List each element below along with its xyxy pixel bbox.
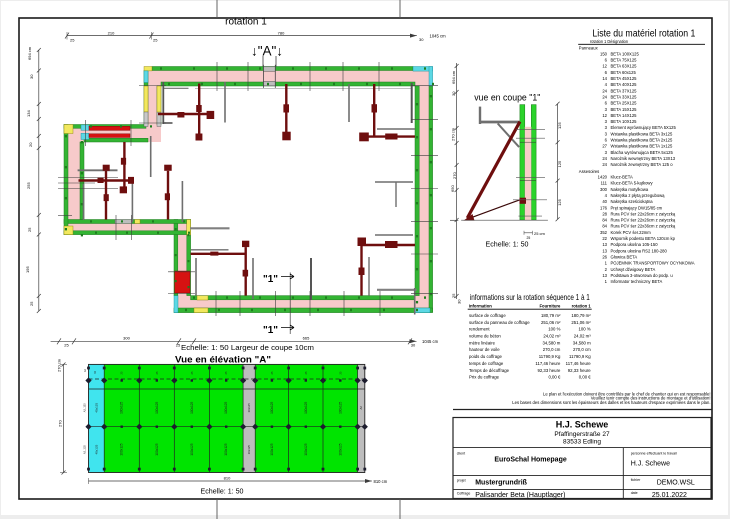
svg-text:92,33 heure: 92,33 heure	[537, 368, 561, 373]
svg-text:100x125: 100x125	[270, 443, 274, 455]
svg-text:694 cm: 694 cm	[451, 70, 456, 84]
svg-text:Wspornik podestu BETA 120cm kp: Wspornik podestu BETA 120cm kp	[611, 236, 676, 241]
svg-text:Pfaffingerstraße 27: Pfaffingerstraße 27	[554, 431, 610, 438]
svg-text:13: 13	[602, 248, 607, 253]
svg-text:Fourniture: Fourniture	[539, 304, 561, 309]
svg-text:255: 255	[26, 182, 31, 189]
svg-text:40x125: 40x125	[94, 444, 98, 454]
svg-text:11790,9 Kg: 11790,9 Kg	[569, 354, 591, 359]
svg-text:100x125: 100x125	[190, 443, 194, 455]
svg-text:176: 176	[600, 205, 608, 210]
svg-text:POJEMNIK TRANSPORTOWY OCYNKOWA: POJEMNIK TRANSPORTOWY OCYNKOWA	[611, 261, 695, 266]
svg-text:134: 134	[26, 110, 31, 117]
svg-text:Pręt spinający DW15/85 cm: Pręt spinający DW15/85 cm	[611, 205, 663, 210]
svg-text:30x125: 30x125	[247, 403, 251, 413]
svg-text:volume de béton: volume de béton	[469, 334, 501, 339]
svg-text:mètre linéaire: mètre linéaire	[469, 340, 496, 345]
svg-text:270 cm: 270 cm	[57, 358, 62, 372]
svg-text:22: 22	[602, 236, 607, 241]
svg-text:Podstawa 3-otworowa do podp. u: Podstawa 3-otworowa do podp. u	[611, 273, 674, 278]
svg-text:195: 195	[25, 266, 30, 273]
svg-text:1045 cm: 1045 cm	[430, 34, 447, 39]
svg-text:Klucz-BETA: Klucz-BETA	[611, 175, 633, 180]
svg-text:date: date	[631, 491, 638, 495]
svg-text:BETA 15X125: BETA 15X125	[611, 107, 638, 112]
svg-text:BETA 63X125: BETA 63X125	[611, 64, 638, 69]
svg-text:84: 84	[602, 218, 607, 223]
svg-text:300: 300	[600, 187, 608, 192]
svg-text:EuroSchal Homepage: EuroSchal Homepage	[494, 457, 566, 464]
svg-text:Temps de décoffrage: Temps de décoffrage	[469, 368, 510, 373]
svg-text:125: 125	[557, 122, 562, 129]
svg-text:Assesoires: Assesoires	[579, 169, 599, 174]
svg-text:27: 27	[602, 144, 607, 149]
svg-text:210: 210	[108, 31, 115, 36]
svg-text:Nakrętka sześciokątna: Nakrętka sześciokątna	[611, 199, 654, 204]
svg-text:665: 665	[303, 336, 310, 341]
svg-text:30: 30	[451, 91, 456, 96]
svg-text:Klucz-BETA 5-kątkowy: Klucz-BETA 5-kątkowy	[611, 181, 654, 186]
svg-text:surface de coffrage: surface de coffrage	[469, 313, 506, 318]
svg-text:personne effectuant le travail: personne effectuant le travail	[631, 452, 677, 456]
svg-text:100 %: 100 %	[579, 327, 591, 332]
svg-text:352: 352	[600, 230, 608, 235]
svg-text:300: 300	[123, 336, 130, 341]
svg-text:25.01.2022: 25.01.2022	[652, 492, 687, 499]
svg-text:projet: projet	[457, 479, 466, 483]
svg-text:270: 270	[58, 420, 63, 427]
svg-text:12: 12	[602, 64, 607, 69]
svg-text:24,02 m³: 24,02 m³	[574, 334, 592, 339]
svg-text:100x125: 100x125	[338, 401, 342, 413]
svg-text:Element wyrównujący BETA 5X125: Element wyrównujący BETA 5X125	[611, 125, 677, 130]
svg-text:rotation 1 Désignation: rotation 1 Désignation	[590, 39, 629, 44]
svg-text:informations sur la rotation: informations sur la rotation séquence 1 …	[470, 292, 590, 302]
svg-text:117,46 heure: 117,46 heure	[535, 361, 561, 366]
svg-text:270,0 cm: 270,0 cm	[543, 347, 561, 352]
svg-text:25 cm: 25 cm	[534, 231, 546, 236]
svg-text:A2_125: A2_125	[83, 445, 87, 455]
svg-text:Nakrętka z płytą przegubową: Nakrętka z płytą przegubową	[611, 193, 666, 198]
svg-text:Uchwyt dźwigowy BETA: Uchwyt dźwigowy BETA	[611, 267, 656, 272]
svg-text:100x125: 100x125	[270, 401, 274, 413]
svg-text:Nakrętka motylkowa: Nakrętka motylkowa	[611, 187, 649, 192]
svg-text:Podpora ukośna 105-150: Podpora ukośna 105-150	[611, 242, 659, 247]
svg-text:BETA 14X125: BETA 14X125	[611, 113, 638, 118]
svg-text:BETA 40X125: BETA 40X125	[611, 82, 638, 87]
svg-text:100x125: 100x125	[120, 401, 124, 413]
svg-text:Wstawka plastikowa BETA 3x125: Wstawka plastikowa BETA 3x125	[611, 131, 674, 136]
svg-text:24: 24	[602, 162, 607, 167]
svg-text:hauteur de voile: hauteur de voile	[469, 347, 500, 352]
svg-text:rotation 1: rotation 1	[225, 17, 267, 28]
svg-text:poids du coffrage: poids du coffrage	[469, 354, 502, 359]
svg-text:117,46 heure: 117,46 heure	[566, 361, 592, 366]
svg-text:30: 30	[29, 74, 34, 79]
svg-text:100x125: 100x125	[304, 401, 308, 413]
svg-text:25: 25	[27, 227, 32, 232]
svg-text:↓"A"↓: ↓"A"↓	[251, 44, 283, 59]
svg-text:rendement: rendement	[469, 327, 490, 332]
svg-text:BETA 100X125: BETA 100X125	[611, 51, 640, 56]
svg-text:100x125: 100x125	[155, 443, 159, 455]
svg-text:111: 111	[601, 181, 608, 186]
svg-text:26: 26	[602, 255, 607, 260]
svg-text:Echelle: 1: 50: Echelle: 1: 50	[201, 487, 244, 496]
svg-text:251,06 m²: 251,06 m²	[571, 320, 591, 325]
svg-text:100x125: 100x125	[190, 401, 194, 413]
svg-text:Wstawka plastikowa BETA 1x125: Wstawka plastikowa BETA 1x125	[611, 144, 674, 149]
svg-text:Les bases des dimensions sont: Les bases des dimensions sont les épaiss…	[512, 400, 710, 405]
svg-text:92,33 heure: 92,33 heure	[568, 368, 592, 373]
svg-text:24: 24	[602, 95, 607, 100]
svg-text:12: 12	[602, 113, 607, 118]
svg-text:Blacha wyrównująca BETA 5x125: Blacha wyrównująca BETA 5x125	[611, 150, 674, 155]
svg-text:"1": "1"	[263, 325, 278, 336]
svg-text:100x125: 100x125	[155, 401, 159, 413]
svg-text:20: 20	[28, 142, 33, 147]
svg-text:24: 24	[602, 88, 607, 93]
svg-text:1420: 1420	[598, 175, 608, 180]
svg-text:30x125: 30x125	[247, 445, 251, 455]
svg-text:0,00 €: 0,00 €	[548, 375, 561, 380]
svg-text:125: 125	[557, 198, 562, 205]
svg-text:DEMO.WSL: DEMO.WSL	[657, 479, 695, 486]
svg-text:H.J. Schewe: H.J. Schewe	[556, 420, 609, 430]
svg-text:25: 25	[70, 38, 75, 43]
svg-text:fichier: fichier	[631, 478, 641, 482]
svg-text:BETA 45X125: BETA 45X125	[611, 76, 638, 81]
svg-text:Rura PCV śer 22x26cm z zatyczk: Rura PCV śer 22x26cm z zatyczką	[611, 218, 676, 223]
svg-text:13: 13	[602, 273, 607, 278]
svg-text:30: 30	[419, 37, 424, 42]
svg-text:150: 150	[600, 51, 608, 56]
svg-text:11790,9 Kg: 11790,9 Kg	[539, 354, 561, 359]
svg-text:Echelle: 1: 50: Echelle: 1: 50	[486, 240, 529, 249]
svg-text:surface du panneau de coffrage: surface du panneau de coffrage	[469, 320, 530, 325]
svg-text:0,00 €: 0,00 €	[579, 375, 592, 380]
svg-text:40x125: 40x125	[94, 403, 98, 413]
svg-text:Narożnik wewnętrzny BETA 13X13: Narożnik wewnętrzny BETA 13X13	[611, 156, 676, 161]
svg-text:rotation 1: rotation 1	[572, 304, 592, 309]
svg-text:25: 25	[451, 293, 456, 298]
svg-text:A2_125: A2_125	[83, 403, 87, 413]
svg-text:Korek PCV śer.22mm: Korek PCV śer.22mm	[611, 230, 652, 235]
svg-text:Liste du matériel rotation 1: Liste du matériel rotation 1	[592, 29, 695, 40]
svg-text:24: 24	[602, 156, 607, 161]
svg-text:Vue en élévation "A": Vue en élévation "A"	[175, 355, 271, 366]
svg-text:25: 25	[64, 343, 69, 348]
svg-text:28: 28	[602, 211, 607, 216]
svg-text:client: client	[457, 451, 465, 455]
svg-text:810 cm: 810 cm	[374, 479, 388, 484]
svg-text:100 %: 100 %	[548, 327, 560, 332]
svg-text:270: 270	[452, 172, 457, 179]
svg-text:34,580 m: 34,580 m	[573, 340, 591, 345]
svg-text:Rura PCV śer 22x36cm z zatyczk: Rura PCV śer 22x36cm z zatyczką	[611, 224, 676, 229]
svg-text:Echelle: 1: 50 Largeur de co: Echelle: 1: 50 Largeur de coupe 10cm	[181, 345, 314, 352]
svg-text:810: 810	[224, 476, 231, 481]
svg-text:Coffrage: Coffrage	[457, 491, 471, 495]
svg-text:100x125: 100x125	[224, 401, 228, 413]
svg-text:270 cm: 270 cm	[451, 127, 456, 141]
svg-text:Panneaux: Panneaux	[579, 46, 599, 51]
svg-text:125: 125	[557, 160, 562, 167]
svg-text:BETA 75X125: BETA 75X125	[611, 58, 638, 63]
svg-text:251,06 m²: 251,06 m²	[541, 320, 561, 325]
svg-text:83533 Edling: 83533 Edling	[563, 439, 601, 446]
svg-text:Podpora ukośna RS2 180-280: Podpora ukośna RS2 180-280	[611, 248, 668, 253]
svg-text:BETA 25X125: BETA 25X125	[611, 101, 638, 106]
svg-text:Narożnik zewnętrzny BETA 125 o: Narożnik zewnętrzny BETA 125 o	[611, 162, 674, 167]
svg-text:1045 cm: 1045 cm	[422, 339, 439, 344]
svg-text:Prix du coffrage: Prix du coffrage	[469, 375, 500, 380]
svg-text:information: information	[469, 304, 492, 309]
svg-text:180,79 m²: 180,79 m²	[571, 313, 591, 318]
svg-text:Rura PCV śer 22x26cm z zatyczk: Rura PCV śer 22x26cm z zatyczką	[611, 211, 676, 216]
svg-text:temps de coffrage: temps de coffrage	[469, 361, 504, 366]
svg-text:BETA 10X125: BETA 10X125	[611, 119, 638, 124]
svg-text:84: 84	[602, 224, 607, 229]
svg-text:34,580 m: 34,580 m	[542, 340, 560, 345]
svg-text:650: 650	[450, 185, 455, 192]
svg-text:13: 13	[602, 242, 607, 247]
svg-text:180,79 m²: 180,79 m²	[541, 313, 561, 318]
svg-text:780: 780	[278, 31, 285, 36]
svg-text:Mustergrundriß: Mustergrundriß	[475, 479, 527, 486]
svg-text:100x125: 100x125	[304, 443, 308, 455]
svg-text:BETA 33X125: BETA 33X125	[611, 95, 638, 100]
svg-text:Głowica BETA: Głowica BETA	[611, 255, 638, 260]
svg-text:30: 30	[411, 343, 416, 348]
svg-text:14: 14	[602, 76, 607, 81]
svg-text:270,0 cm: 270,0 cm	[573, 347, 591, 352]
svg-text:Palisander Beta (Hauptlager): Palisander Beta (Hauptlager)	[475, 492, 565, 499]
svg-text:100x125: 100x125	[338, 443, 342, 455]
svg-text:30: 30	[457, 299, 462, 304]
svg-text:BETA 37X125: BETA 37X125	[611, 88, 638, 93]
svg-text:25: 25	[153, 38, 158, 43]
svg-text:H.J. Schewe: H.J. Schewe	[631, 460, 670, 467]
svg-text:Informator techniczny BETA: Informator techniczny BETA	[611, 279, 663, 284]
svg-text:A2: A2	[359, 406, 363, 410]
svg-text:vue en coupe "1": vue en coupe "1"	[474, 93, 540, 104]
svg-text:25: 25	[29, 301, 34, 306]
svg-text:BETA 60x125: BETA 60x125	[611, 70, 637, 75]
svg-text:100x125: 100x125	[120, 443, 124, 455]
svg-text:100x125: 100x125	[224, 443, 228, 455]
svg-text:"1": "1"	[263, 274, 278, 285]
svg-text:Wstawka plastikowa BETA 2x125: Wstawka plastikowa BETA 2x125	[611, 138, 674, 143]
svg-text:24,02 m³: 24,02 m³	[543, 334, 561, 339]
svg-text:40: 40	[602, 199, 607, 204]
svg-text:694 cm: 694 cm	[27, 46, 32, 60]
